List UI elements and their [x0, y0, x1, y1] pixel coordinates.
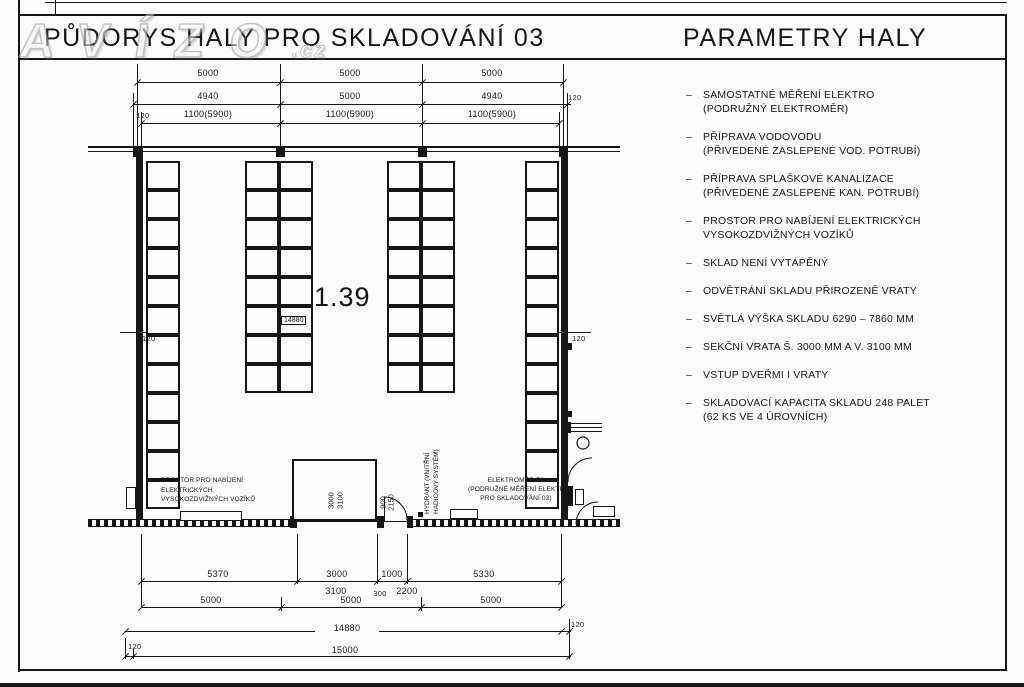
rack-group-divider	[146, 247, 180, 250]
rack-cell	[525, 219, 559, 248]
rack-cell	[387, 161, 421, 190]
plan-line	[141, 123, 560, 124]
grate-line	[570, 423, 602, 424]
rack-group-divider	[525, 247, 559, 250]
charging-note: PROSTOR PRO NABÍJENÍ ELEKTRICKÝCH VYSOKO…	[161, 476, 255, 505]
dim-label: 2200	[390, 586, 424, 596]
plan-line	[281, 597, 282, 611]
dim-label: 1100(5900)	[315, 109, 385, 119]
rack-cell	[525, 306, 559, 335]
rack-cell	[279, 219, 313, 248]
rack-group-divider	[245, 247, 313, 250]
column-mark	[276, 146, 285, 157]
meter-note-line: ELEKTROMĚR E8	[468, 476, 564, 485]
dim-label: 5000	[320, 91, 380, 101]
floor-plan	[0, 0, 1024, 687]
rack-cell	[525, 277, 559, 306]
rack-group-divider	[245, 334, 313, 337]
rack-cell	[387, 306, 421, 335]
gate-threshold	[297, 521, 377, 522]
plan-line	[18, 669, 1007, 671]
rack-cell	[279, 190, 313, 219]
dim-tick	[558, 604, 565, 611]
hydrant-note-line: HYDRANT (VNITŘNÍ	[424, 449, 433, 514]
rack-cell	[245, 277, 279, 306]
dim-label: 1000	[366, 569, 418, 579]
rack-cell	[279, 364, 313, 393]
dim-label: 5000	[181, 595, 241, 605]
plan-line	[18, 0, 20, 672]
drawing-sheet: AVÍZO.cz PŮDORYS HALY PRO SKLADOVÁNÍ 03 …	[0, 0, 1024, 687]
rack-group-divider	[525, 421, 559, 424]
watermark-main: AVÍZO	[16, 15, 297, 68]
rack-group-divider	[525, 334, 559, 337]
meter-box-cover	[575, 489, 584, 505]
plan-line	[141, 534, 142, 608]
rack-group-divider	[146, 421, 180, 424]
dim-label: 14880	[315, 623, 379, 633]
dim-label: 5000	[462, 68, 522, 78]
plan-line	[55, 0, 56, 14]
rack-cell	[421, 306, 455, 335]
dim-label: 3000	[307, 569, 367, 579]
watermark-ext: .cz	[290, 37, 329, 62]
rack-cell	[245, 335, 279, 364]
rack-cell	[146, 190, 180, 219]
rack-cell	[279, 248, 313, 277]
dim-label: 1100(5900)	[173, 109, 243, 119]
plan-line	[137, 64, 138, 146]
plan-line	[559, 112, 560, 146]
rack-cell	[525, 393, 559, 422]
column-mark	[133, 146, 142, 157]
dim-label: 5000	[321, 595, 381, 605]
rack-cell	[279, 335, 313, 364]
rack-cell	[279, 161, 313, 190]
meter-note: ELEKTROMĚR E8 (PODRUŽNÉ MĚŘENÍ ELEKTRO P…	[468, 476, 564, 503]
grate-line	[570, 427, 602, 428]
gate-jamb	[377, 516, 384, 528]
wall-niche	[126, 487, 136, 509]
dim-label: 120	[136, 111, 160, 120]
rack-cell	[421, 335, 455, 364]
grate-line	[570, 431, 602, 432]
plan-line	[141, 607, 561, 608]
rack-cell	[387, 248, 421, 277]
rack-cell	[245, 364, 279, 393]
rack-cell	[245, 248, 279, 277]
door-height-label: 2150	[387, 493, 396, 513]
rack-cell	[421, 248, 455, 277]
plan-line	[125, 656, 571, 657]
gate-height-label: 3100	[336, 486, 345, 516]
charging-station	[180, 511, 242, 521]
rack-cell	[245, 219, 279, 248]
dim-label: 4940	[462, 91, 522, 101]
meter-note-line: PRO SKLADOVÁNÍ 03)	[468, 494, 564, 503]
charging-note-line: VYSOKOZDVIŽNÝCH VOZÍKŮ	[161, 495, 255, 505]
rack-cell	[525, 248, 559, 277]
dim-label: 5000	[461, 595, 521, 605]
gate-width-label: 3000	[327, 486, 336, 516]
hydrant-note-line: HADICOVÝ SYSTÉM)	[433, 449, 442, 514]
door-threshold	[384, 521, 407, 522]
rack-cell	[146, 277, 180, 306]
rack-cell	[421, 190, 455, 219]
dim-label: 4940	[178, 91, 238, 101]
exterior-pad	[593, 506, 615, 517]
rack-cell	[245, 306, 279, 335]
rack-cell	[146, 393, 180, 422]
rack-cell	[387, 219, 421, 248]
plan-line	[563, 64, 564, 146]
rack-cell	[525, 335, 559, 364]
room-number: 1.39	[314, 282, 371, 313]
plan-line	[421, 597, 422, 611]
dim-label: 5370	[188, 569, 248, 579]
rack-cell	[245, 190, 279, 219]
plan-line	[1005, 14, 1007, 671]
rack-cell	[421, 161, 455, 190]
rack-group-divider	[387, 334, 455, 337]
rack-cell	[421, 364, 455, 393]
plan-line	[45, 2, 1007, 3]
rack-cell	[146, 219, 180, 248]
rack-cell	[525, 364, 559, 393]
rack-cell	[525, 422, 559, 451]
rack-cell	[245, 161, 279, 190]
door-jamb	[407, 516, 413, 528]
wall-fixture	[564, 343, 572, 350]
dim-label: 120	[572, 334, 592, 343]
rack-cell	[146, 161, 180, 190]
hydrant-cabinet	[450, 509, 478, 519]
plan-line	[422, 64, 423, 127]
dim-label: 120	[568, 93, 592, 102]
plan-line	[120, 332, 146, 333]
rack-cell	[279, 277, 313, 306]
dim-label: 5000	[320, 68, 380, 78]
rack-cell	[146, 422, 180, 451]
plan-line	[422, 127, 423, 146]
plan-line	[297, 534, 298, 584]
dim-label: 1100(5900)	[457, 109, 527, 119]
plan-line	[280, 127, 281, 146]
rack-cell	[387, 190, 421, 219]
plan-line	[141, 581, 561, 582]
dim-label: 15000	[315, 645, 375, 655]
rack-cell	[387, 364, 421, 393]
plan-line	[88, 146, 620, 148]
rack-cell	[146, 248, 180, 277]
grate-anchor	[566, 422, 571, 433]
watermark: AVÍZO.cz	[16, 14, 332, 69]
plan-line	[0, 683, 1024, 687]
rack-cell	[146, 306, 180, 335]
dim-label: 120	[142, 334, 162, 343]
wall-fixture	[564, 411, 572, 417]
plan-line	[561, 146, 568, 527]
dim-label: 5000	[178, 68, 238, 78]
rack-cell	[387, 335, 421, 364]
charging-note-line: ELEKTRICKÝCH	[161, 486, 255, 496]
plan-line	[569, 619, 570, 659]
column-mark	[418, 146, 427, 157]
plan-line	[88, 151, 620, 152]
dim-label: 120	[571, 620, 593, 629]
rack-group-divider	[387, 247, 455, 250]
rack-cell	[146, 364, 180, 393]
plan-line	[561, 534, 562, 608]
plan-line	[137, 82, 564, 83]
column-mark	[559, 146, 568, 157]
plan-line	[133, 93, 134, 146]
charging-note-line: PROSTOR PRO NABÍJENÍ	[161, 476, 255, 486]
rack-cell	[421, 219, 455, 248]
hydrant-note: HYDRANT (VNITŘNÍ HADICOVÝ SYSTÉM)	[424, 449, 441, 514]
plan-line	[280, 64, 281, 127]
valve-symbol	[418, 512, 423, 517]
rack-cell	[525, 190, 559, 219]
dim-label: 5330	[454, 569, 514, 579]
rack-cell	[387, 277, 421, 306]
rack-cell	[421, 277, 455, 306]
door-opening	[384, 518, 407, 528]
meter-note-line: (PODRUŽNÉ MĚŘENÍ ELEKTRO	[468, 485, 564, 494]
rack-cell	[525, 161, 559, 190]
dim-label: 120	[128, 642, 150, 651]
room-dim-tag: 14880	[281, 316, 306, 325]
plan-line	[133, 104, 571, 105]
